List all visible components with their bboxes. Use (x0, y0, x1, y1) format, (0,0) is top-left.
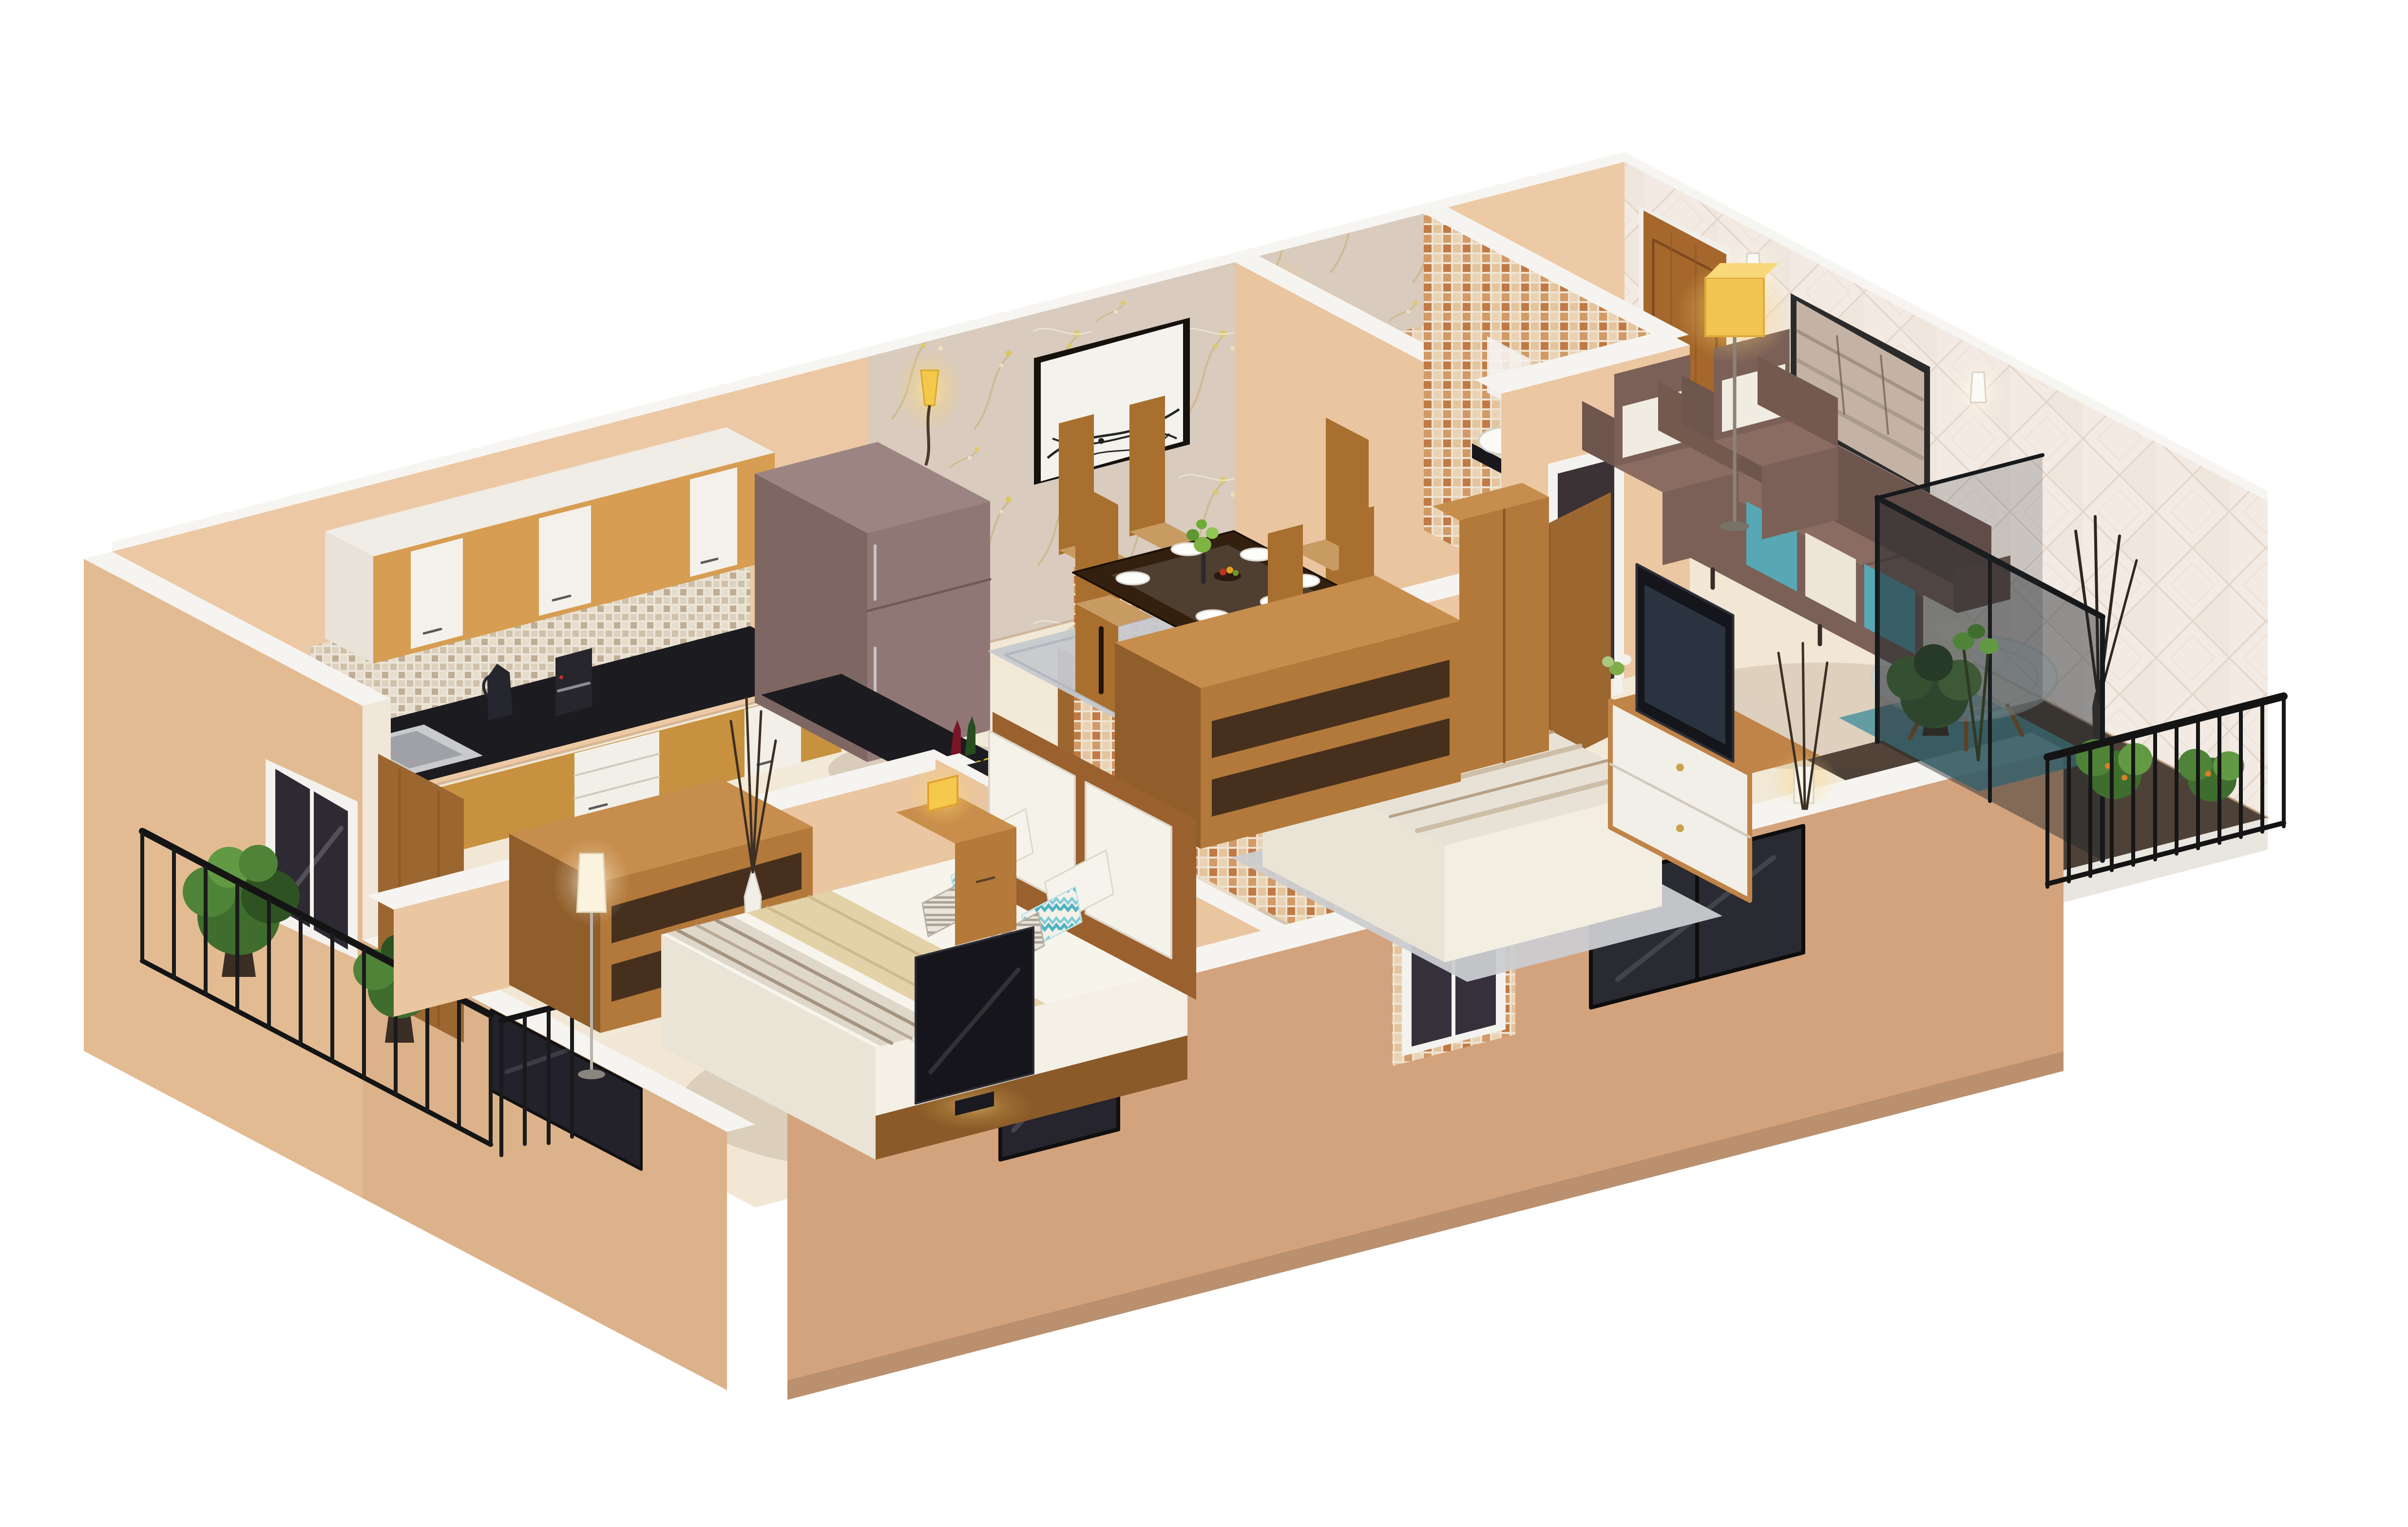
balcony-left-bush1e (239, 845, 278, 882)
balcony-berry2 (2121, 775, 2127, 781)
balcony-partition-glass2 (1877, 455, 2043, 742)
dining-plate1 (1116, 572, 1149, 585)
floorplan-3d-render (0, 0, 2408, 1527)
dining-fruit1 (1220, 569, 1226, 575)
balcony-tall-plant-leaf2 (1979, 638, 1999, 654)
living-floorlamp-base (1720, 521, 1749, 531)
dining-chair-back2-rest (1129, 396, 1165, 536)
bedroom2-flower2 (1602, 656, 1614, 667)
floorplan-canvas (0, 0, 2408, 1527)
kitchen-kettle (487, 664, 513, 720)
bedroom2-tvunit-handle2 (1676, 763, 1684, 771)
balcony-tall-plant-leaf3 (1968, 624, 1985, 639)
bedroom2-flower3 (1620, 654, 1631, 665)
dining-fruit3 (1233, 570, 1239, 576)
bedroom1-tv (916, 927, 1033, 1104)
living-sconce2 (1970, 372, 1986, 402)
kitchen-upper-door-white2 (539, 505, 591, 616)
dining-fruit2 (1226, 567, 1233, 573)
bedroom1-nightstand-front (955, 827, 1016, 946)
bedroom1-floorlamp-shade (577, 854, 606, 912)
dining-centerpiece-leaf2 (1186, 529, 1199, 541)
bedroom2-tvunit-handle1 (1676, 824, 1684, 832)
dining-centerpiece-leaf3 (1206, 527, 1219, 539)
kitchen-coffee-maker (555, 648, 592, 716)
dining-centerpiece-leaf4 (1196, 519, 1207, 529)
dining-art-dot1 (1098, 438, 1104, 444)
kitchen-coffee-maker-light (559, 675, 563, 679)
bedroom1-floorlamp-base (578, 1069, 605, 1079)
balcony-berry3 (2205, 771, 2211, 777)
bedroom1-cubelamp (928, 776, 957, 811)
kitchen-upper-door-white1 (411, 538, 463, 649)
dining-sconce1-shade (921, 370, 938, 405)
living-floorlamp-shade (1705, 278, 1764, 336)
